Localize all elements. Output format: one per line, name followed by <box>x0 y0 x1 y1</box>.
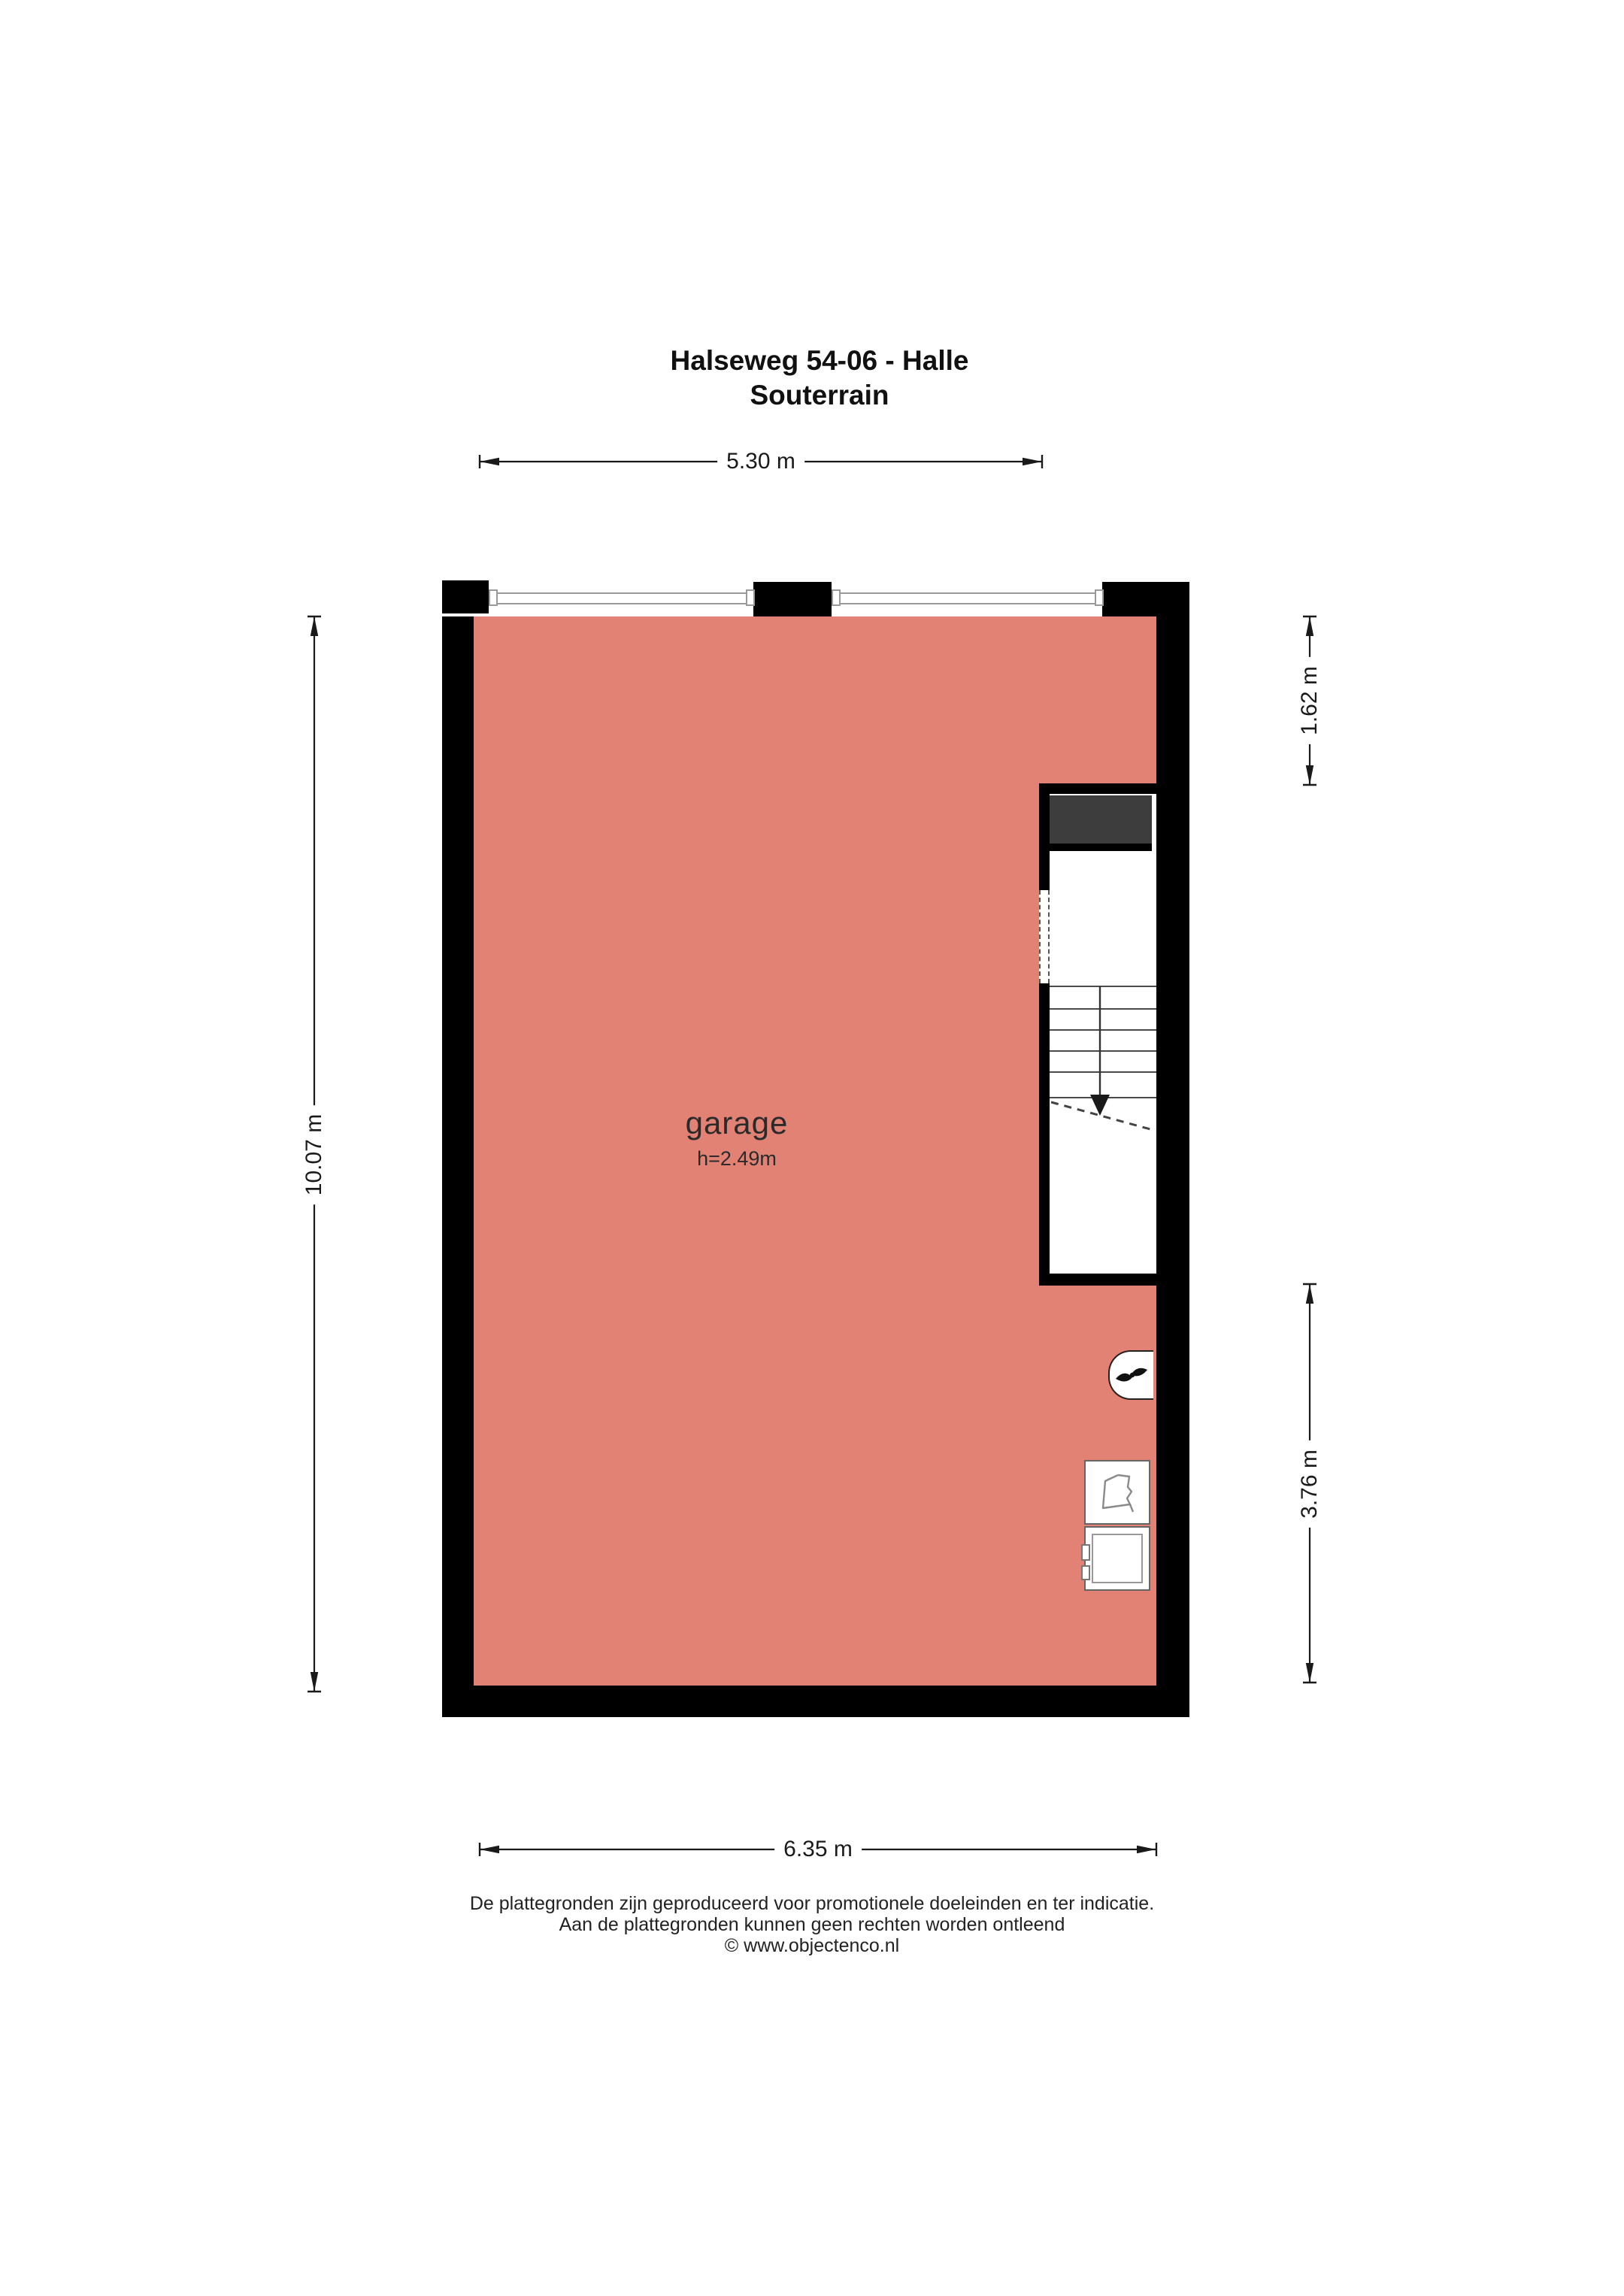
fan-icon <box>1114 1364 1150 1388</box>
window-right <box>832 592 1102 604</box>
footer-line-2: Aan de plattegronden kunnen geen rechten… <box>0 1914 1624 1935</box>
window-right-cap-end <box>1095 589 1104 606</box>
wall-right <box>1156 582 1189 1717</box>
appliance-connector-top <box>1081 1544 1090 1561</box>
stairwell-wall-bottom <box>1039 1274 1156 1286</box>
window-left-cap-end <box>746 589 755 606</box>
footer-disclaimer: De plattegronden zijn geproduceerd voor … <box>0 1893 1624 1956</box>
wall-left <box>442 580 474 1717</box>
wall-corner-block-right <box>1102 582 1189 616</box>
stair-landing-block-edge <box>1050 844 1152 851</box>
room-name-label: garage <box>571 1107 902 1143</box>
dimension-right-lower: 3.76 m <box>1299 1281 1320 1686</box>
wall-corner-block-left <box>442 580 489 613</box>
wall-bottom <box>442 1686 1189 1717</box>
plan-title-floor: Souterrain <box>15 378 1624 413</box>
footer-copyright: © www.objectenco.nl <box>0 1935 1624 1956</box>
dimension-left-value: 10.07 m <box>301 1104 327 1204</box>
window-right-cap-start <box>832 589 841 606</box>
wall-pillar-middle <box>753 582 832 616</box>
dimension-bottom: 6.35 m <box>477 1839 1159 1860</box>
plan-title-address: Halseweg 54-06 - Halle <box>15 343 1624 378</box>
dimension-left: 10.07 m <box>304 613 325 1695</box>
room-label-group: garage h=2.49m <box>571 1107 902 1170</box>
stairwell-wall-left-lower <box>1039 983 1050 1274</box>
sink-basin-icon <box>1086 1462 1152 1526</box>
appliance-fixture <box>1084 1526 1150 1591</box>
room-height-label: h=2.49m <box>571 1147 902 1170</box>
stairwell-wall-left-upper <box>1039 783 1050 890</box>
dimension-right-lower-value: 3.76 m <box>1297 1440 1323 1527</box>
appliance-connector-bottom <box>1081 1565 1090 1580</box>
window-left <box>489 592 753 604</box>
dimension-right-upper: 1.62 m <box>1299 613 1320 788</box>
stair-landing-block <box>1050 795 1152 844</box>
dimension-top: 5.30 m <box>477 451 1045 472</box>
sink-fixture <box>1084 1460 1150 1525</box>
stairs-drawing <box>1050 977 1156 1146</box>
dimension-top-value: 5.30 m <box>717 449 804 474</box>
floorplan-page: Halseweg 54-06 - Halle Souterrain <box>0 0 1624 2296</box>
dimension-bottom-value: 6.35 m <box>774 1837 862 1862</box>
footer-line-1: De plattegronden zijn geproduceerd voor … <box>0 1893 1624 1914</box>
dimension-right-upper-value: 1.62 m <box>1297 657 1323 744</box>
stair-treads <box>1050 986 1156 1098</box>
window-left-cap-start <box>489 589 498 606</box>
stairwell-wall-top <box>1039 783 1156 794</box>
stairwell-door-opening <box>1039 890 1050 983</box>
plan-title: Halseweg 54-06 - Halle Souterrain <box>15 343 1624 413</box>
appliance-inner-panel <box>1092 1534 1143 1583</box>
ventilation-unit <box>1108 1350 1153 1400</box>
